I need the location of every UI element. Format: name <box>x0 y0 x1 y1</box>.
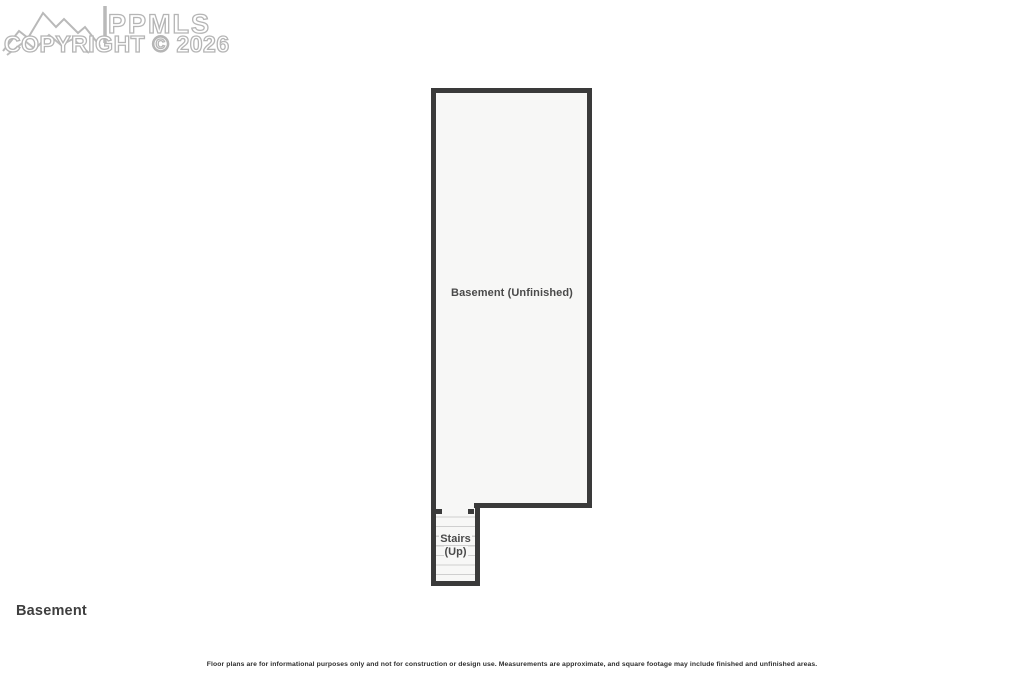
stair-opening-right-jamb <box>468 509 474 514</box>
floor-title: Basement <box>16 603 87 619</box>
watermark-copyright-text: COPYRIGHT © 2026 <box>4 31 230 58</box>
stairs-label-line2: (Up) <box>444 546 468 558</box>
watermark-logo: PPMLS COPYRIGHT © 2026 <box>0 0 230 70</box>
disclaimer-text: Floor plans are for informational purpos… <box>0 661 1024 668</box>
stairs-label: Stairs (Up) <box>431 533 480 558</box>
room-label: Basement (Unfinished) <box>431 287 593 299</box>
basement-bottom-wall <box>474 503 592 508</box>
stairs-label-line1: Stairs <box>439 533 472 545</box>
stair-opening-left-jamb <box>436 509 442 514</box>
